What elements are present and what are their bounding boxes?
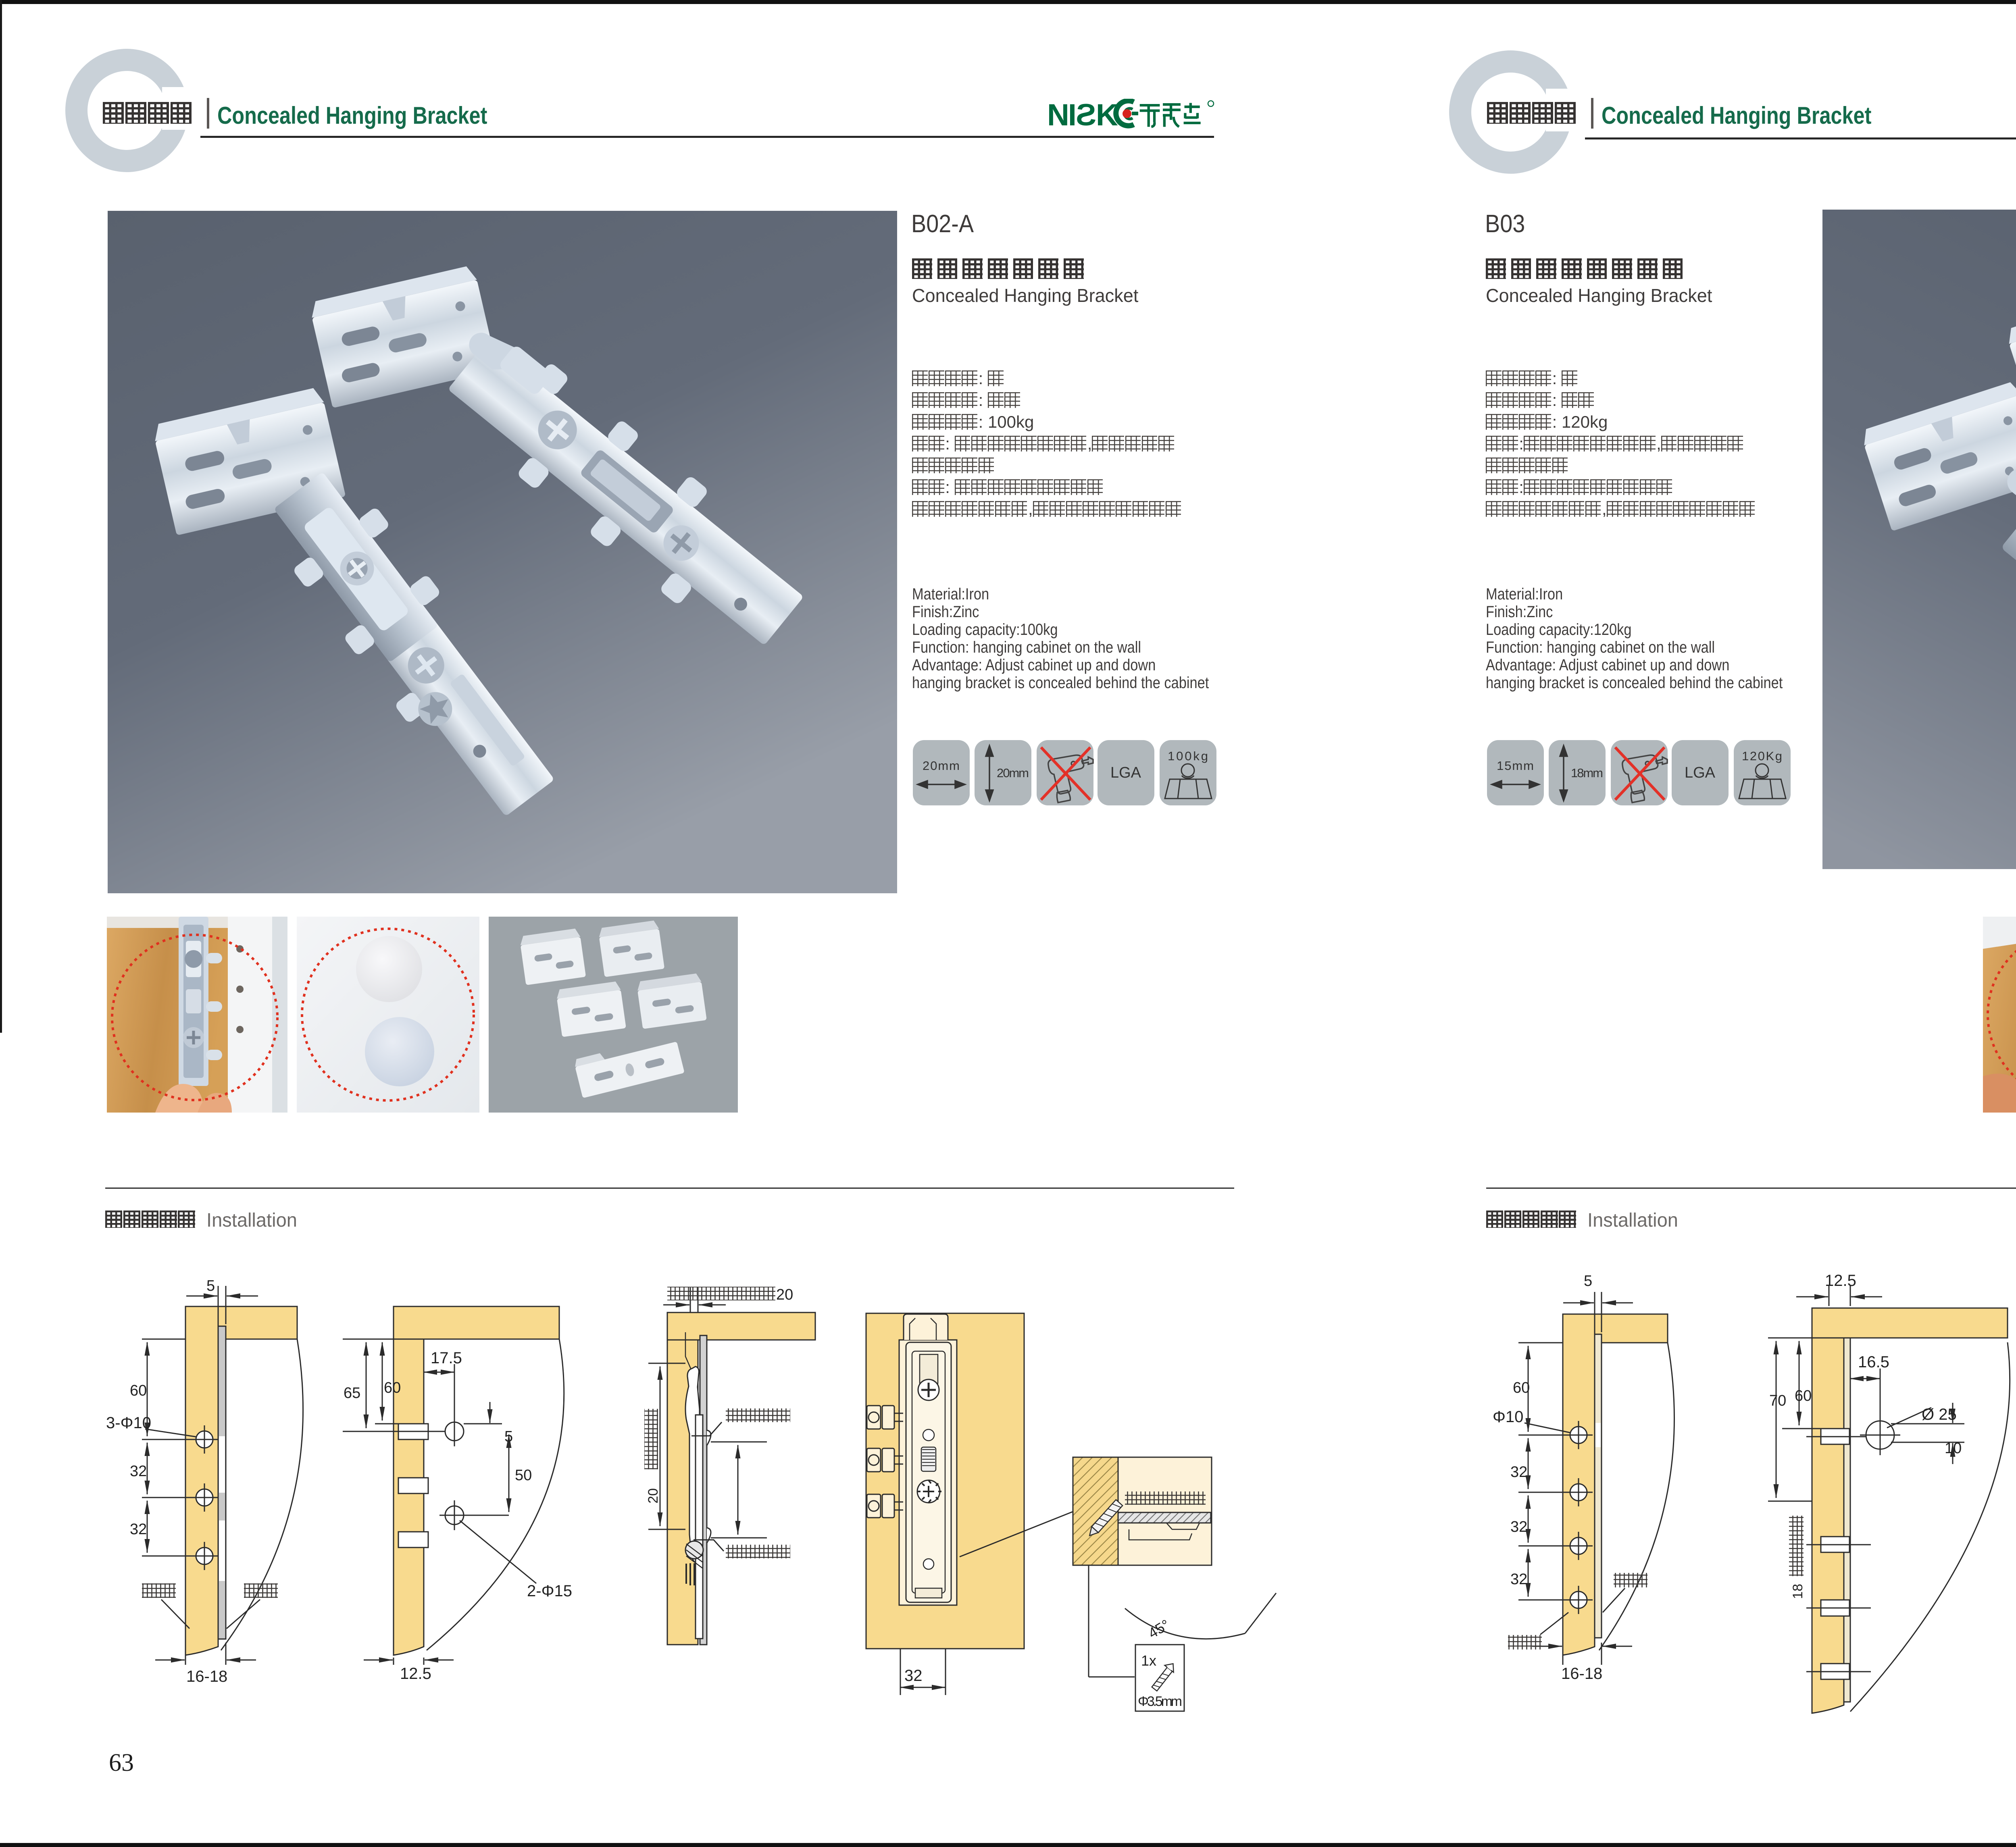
svg-text:100kg: 100kg (1168, 749, 1208, 763)
svg-text:3-Φ10: 3-Φ10 (106, 1414, 151, 1432)
svg-text:60: 60 (384, 1379, 401, 1396)
svg-text:5: 5 (504, 1428, 513, 1445)
svg-text:70: 70 (1769, 1392, 1786, 1409)
svg-text:15mm: 15mm (1497, 759, 1534, 773)
svg-text:50: 50 (515, 1467, 532, 1484)
svg-text:12.5: 12.5 (400, 1665, 431, 1683)
svg-text:32: 32 (130, 1463, 147, 1480)
svg-text:5: 5 (206, 1277, 215, 1294)
svg-text:60: 60 (1513, 1379, 1530, 1396)
svg-text:Ø 25: Ø 25 (1922, 1406, 1957, 1423)
svg-text:32: 32 (130, 1521, 147, 1538)
svg-text:20: 20 (776, 1286, 793, 1303)
svg-text:16-18: 16-18 (1561, 1665, 1602, 1683)
svg-text:1x: 1x (1141, 1652, 1156, 1669)
svg-text:S: S (1076, 99, 1096, 132)
svg-text:60: 60 (130, 1382, 147, 1399)
svg-text:20mm: 20mm (997, 766, 1029, 780)
svg-text:17.5: 17.5 (431, 1349, 462, 1367)
svg-text:10: 10 (1945, 1440, 1962, 1457)
svg-text:Φ3.5mm: Φ3.5mm (1138, 1694, 1182, 1709)
svg-text:16-18: 16-18 (186, 1668, 227, 1685)
svg-text:45°: 45° (1145, 1616, 1173, 1641)
svg-text:120Kg: 120Kg (1742, 749, 1782, 763)
svg-text:60: 60 (1795, 1387, 1812, 1404)
svg-text:LGA: LGA (1110, 764, 1141, 781)
svg-text:32: 32 (1510, 1464, 1527, 1481)
svg-text:65: 65 (344, 1385, 360, 1402)
svg-text:12.5: 12.5 (1825, 1272, 1856, 1290)
svg-text:Φ10: Φ10 (1493, 1408, 1523, 1426)
svg-text:20: 20 (646, 1488, 661, 1504)
svg-text:32: 32 (904, 1667, 923, 1685)
svg-text:16.5: 16.5 (1858, 1353, 1889, 1371)
svg-text:LGA: LGA (1685, 764, 1716, 781)
svg-text:20mm: 20mm (923, 759, 960, 773)
svg-text:2-Φ15: 2-Φ15 (527, 1582, 572, 1600)
svg-text:NI: NI (1048, 99, 1075, 132)
svg-text:32: 32 (1510, 1518, 1527, 1535)
svg-text:5: 5 (1584, 1273, 1592, 1290)
svg-text:18mm: 18mm (1571, 766, 1603, 780)
svg-text:18: 18 (1790, 1584, 1806, 1599)
svg-text:32: 32 (1510, 1571, 1527, 1588)
